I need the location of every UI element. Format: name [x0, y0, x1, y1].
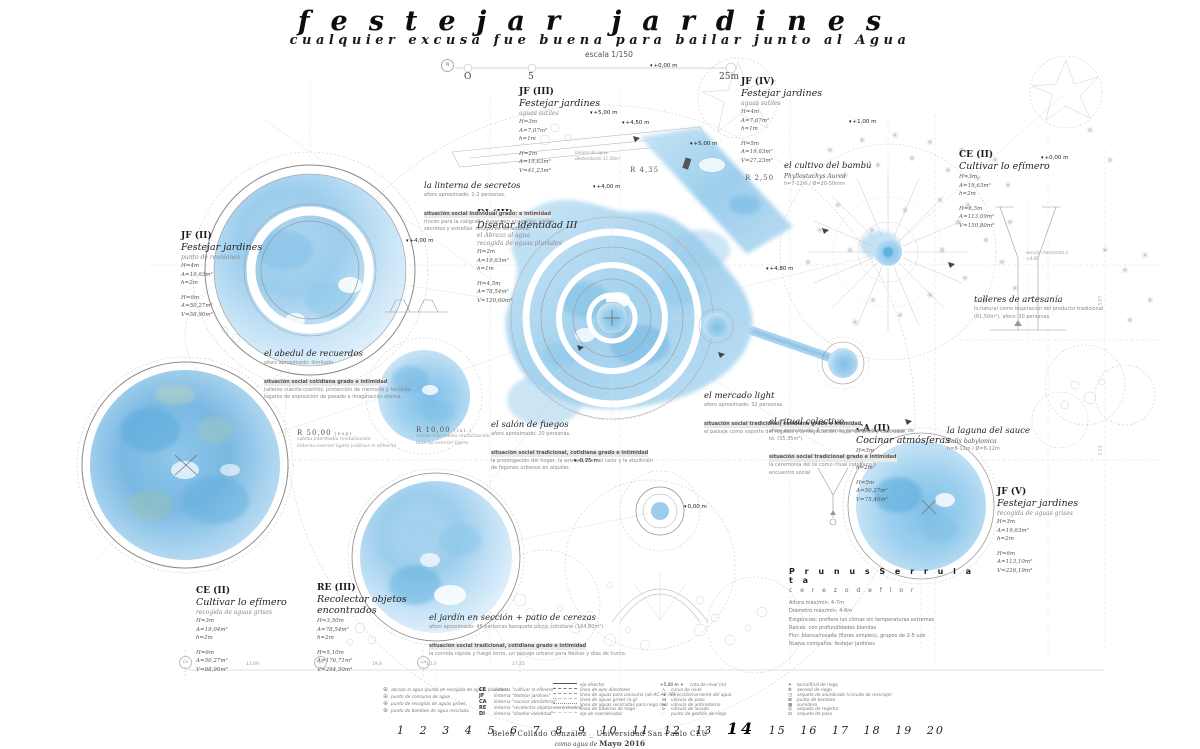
line-sample-icon — [553, 693, 577, 694]
grid-node-code: F·6 — [179, 656, 192, 669]
line-sample-icon — [553, 698, 577, 699]
level-marker: ▾+4,00 m — [406, 238, 433, 244]
level-marker: ▾+5,00 m — [590, 110, 617, 116]
radius-label-r50: R 50,00 (esp) cabina intermedia revitali… — [297, 429, 396, 451]
label-ce2-bottom: CE (II) Cultivar lo efímero recogida de … — [196, 586, 316, 674]
scale-label: escala 1/150 — [585, 50, 633, 59]
prunus-spec-block: P r u n u s S e r r u l a t a c e r e z … — [789, 567, 979, 649]
note-ce2-seccion: sección horizontal a +4,00 — [1026, 250, 1068, 262]
label-jf5: JF (V) Festejar jardines recogida de agu… — [997, 487, 1117, 575]
dimension-value: 19,4 — [372, 662, 382, 667]
note-jf3-lamina: lámina de agua desbordante 31,50m² — [575, 150, 635, 162]
circle-plus-icon: ⊕ — [383, 700, 388, 707]
level-marker: ▾+0,00 m — [650, 63, 677, 69]
legend-symbol-icon: ⊡ — [788, 712, 797, 717]
note-ritual-colectivo: el ritual colectivo aforo aproximado: 8 … — [769, 417, 919, 477]
level-marker: ▾0,00 m — [684, 504, 707, 510]
note-abedul-recuerdos: el abedul de recuerdos aforo aproximado:… — [264, 349, 454, 402]
level-marker: ▾+4,80 m — [766, 266, 793, 272]
grid-node-code: C·6 — [314, 656, 327, 669]
radius-label-r10: R 10,00 (int.) cabina intermedia revital… — [416, 426, 490, 448]
line-sample-icon — [553, 712, 577, 713]
note-jardin-seccion: el jardín en sección + patio de cerezas … — [429, 613, 679, 658]
label-ce2-top: CE (II) Cultivar lo efímero H=3mA=19,63m… — [959, 150, 1079, 230]
level-marker: ▾-0,75 m — [574, 458, 599, 464]
poster-subtitle: cualquier excusa fue buena para bailar j… — [0, 33, 1200, 48]
level-marker: ▾+5,00 m — [690, 141, 717, 147]
line-sample-icon — [553, 707, 577, 708]
label-jf4: JF (IV) Festejar jardines aguas sutiles … — [741, 77, 861, 165]
scale-tick-25: 25m — [719, 72, 739, 82]
level-marker: ▾+4,50 m — [622, 120, 649, 126]
scale-tick-0: O — [464, 72, 471, 82]
dimension-value: 13,09 — [246, 662, 259, 667]
line-sample-icon — [553, 688, 577, 689]
radius-label-r250: R 2,50 — [745, 174, 774, 182]
dimension-value-vertical: 5,07 — [1099, 295, 1104, 305]
line-sample-icon — [553, 683, 577, 684]
note-laguna-sauce: la laguna del sauce Salix babylonicah=8-… — [947, 426, 1057, 454]
note-salon-fuegos: el salón de fuegos aforo aproximado: 20 … — [491, 420, 686, 473]
north-compass-icon: N — [441, 51, 454, 72]
level-marker: ▾+1,00 m — [849, 119, 876, 125]
level-marker: ▾+4,00 m — [593, 184, 620, 190]
radius-label-r435: R 4,35 — [630, 166, 659, 174]
date-credit: como agua de Mayo 2016 — [0, 739, 1200, 748]
circle-plus-icon: ⊕ — [383, 707, 388, 714]
dimension-value-vertical: 1,03 — [1099, 445, 1104, 455]
legend-hydraulic: +5,00 m▾cota de nivel (m)∿curva de nivel… — [660, 683, 731, 717]
line-sample-icon — [553, 703, 577, 704]
dimension-value: 17,25 — [512, 662, 525, 667]
label-jf2: JF (II) Festejar jardines punto de reuni… — [181, 231, 301, 319]
dimension-value: 1,13 — [426, 662, 436, 667]
author-credit: Belén Collado González _ Universidad San… — [0, 730, 1200, 738]
circle-plus-icon: ⊕ — [383, 686, 388, 693]
plan-poster: festejar jardines cualquier excusa fue b… — [0, 0, 1200, 749]
legend-chambers: ✦toma/final de riego✻aerosol de riego◫ar… — [788, 683, 892, 717]
scale-tick-5: 5 — [528, 72, 534, 82]
note-linterna-secretos: la linterna de secretos aforo aproximado… — [424, 181, 604, 234]
label-jf3: JF (III) Festejar jardines aguas sutiles… — [519, 87, 639, 175]
level-marker: ▾+0,00 m — [1041, 155, 1068, 161]
note-cultivo-bambu: el cultivo del bambú Phyllostachys Aurea… — [784, 161, 904, 189]
legend-symbol-icon: · — [662, 712, 671, 717]
note-talleres-artesania: talleres de artesanía lo natural como in… — [974, 295, 1149, 321]
legend-line-types: eje directorlínea de ejes directoreslíne… — [553, 683, 675, 717]
circle-plus-icon: ⊕ — [383, 693, 388, 700]
